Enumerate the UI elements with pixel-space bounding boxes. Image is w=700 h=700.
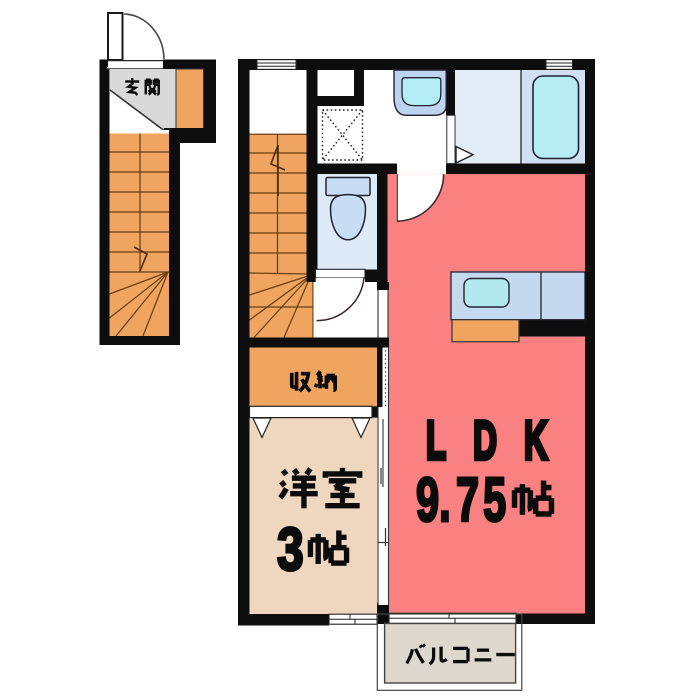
svg-text:LDK: LDK xyxy=(426,409,575,471)
svg-text:75: 75 xyxy=(456,466,510,535)
svg-text:9.: 9. xyxy=(416,466,451,535)
svg-text:3: 3 xyxy=(277,516,304,583)
